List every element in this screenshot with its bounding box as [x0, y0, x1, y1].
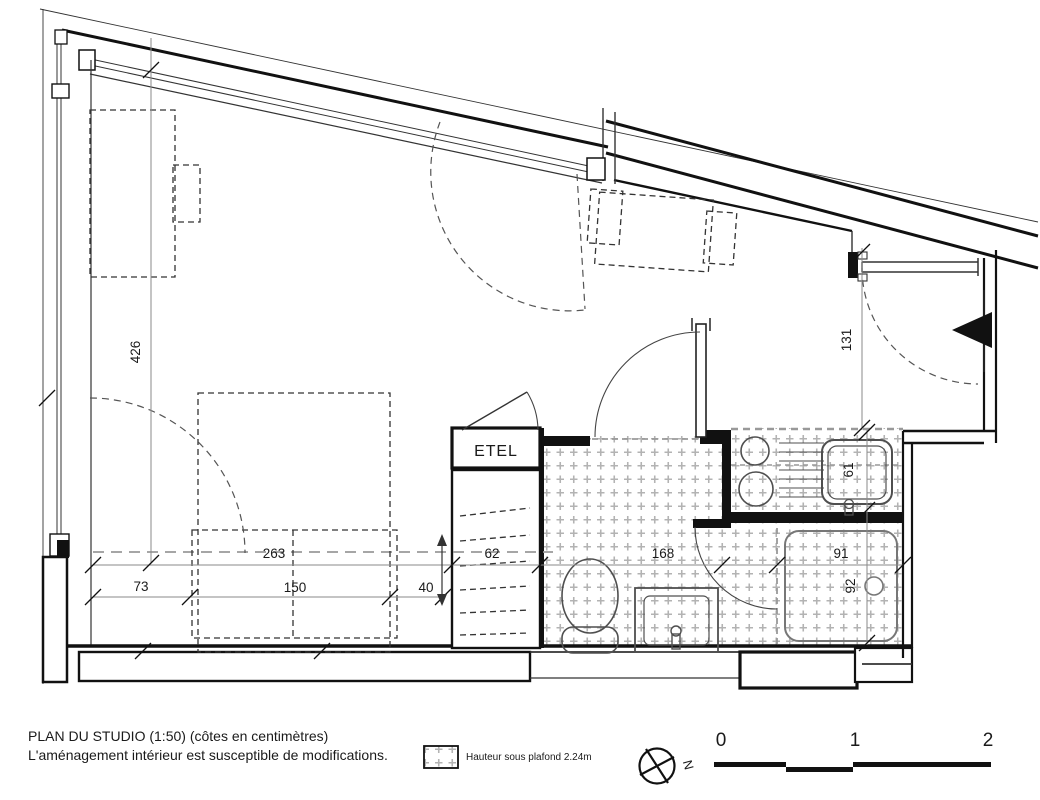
- dim-entry-depth: 131: [839, 329, 854, 352]
- north-compass-icon: N: [640, 749, 697, 784]
- top-window: [79, 50, 605, 183]
- dim-bed-zone: 263: [263, 546, 286, 561]
- dim-bathroom: 168: [652, 546, 675, 561]
- window-jamb: [79, 50, 95, 70]
- left-solid-wall: [43, 557, 67, 682]
- dim-room-height: 426: [128, 341, 143, 364]
- legend-ceiling-label: Hauteur sous plafond 2.24m: [466, 752, 592, 763]
- bathroom-door: [595, 318, 710, 437]
- closet-label: ETEL: [474, 443, 518, 460]
- scale-1: 1: [850, 730, 861, 751]
- dim-bed-width: 150: [284, 580, 307, 595]
- desk-center: [595, 192, 714, 272]
- scale-0: 0: [716, 730, 727, 751]
- floor-plan-page: ETEL: [0, 0, 1040, 800]
- dim-closet: 62: [484, 546, 499, 561]
- entrance-arrow-icon: [952, 312, 992, 348]
- chair: [173, 165, 200, 222]
- door-leaf: [696, 324, 706, 437]
- legend: Hauteur sous plafond 2.24m: [424, 746, 592, 768]
- closet-door-leaf: [462, 392, 527, 430]
- entrance-door: [858, 252, 978, 384]
- left-window-swing: [90, 398, 245, 553]
- north-label: N: [680, 758, 697, 771]
- entrance-door-swing: [862, 268, 978, 384]
- dim-bed-right: 40: [418, 580, 433, 595]
- bottom-wall: [67, 646, 912, 688]
- plan-subtitle: L'aménagement intérieur est susceptible …: [28, 747, 388, 763]
- window-jamb: [587, 158, 605, 180]
- dim-bed-left: 73: [133, 579, 148, 594]
- left-window: [43, 30, 91, 682]
- closet-door-swing: [527, 392, 538, 430]
- bathroom-door-swing: [595, 332, 700, 437]
- french-window-swing: [431, 122, 585, 311]
- chair: [587, 189, 623, 245]
- scale-2: 2: [983, 730, 994, 751]
- legend-hatch-swatch: [424, 746, 458, 768]
- chair: [703, 211, 737, 265]
- floor-plan-drawing: ETEL: [0, 0, 1040, 800]
- dim-shower-width: 91: [833, 546, 848, 561]
- dim-sink-depth: 61: [841, 462, 856, 477]
- bed: [198, 393, 390, 652]
- plan-title: PLAN DU STUDIO (1:50) (côtes en centimèt…: [28, 728, 328, 744]
- etel-closet: ETEL: [452, 392, 540, 468]
- clearance-arrow: [437, 534, 447, 606]
- desk-left: [90, 110, 175, 277]
- shower-drain-icon: [865, 577, 883, 595]
- french-window-leaf: [577, 174, 585, 309]
- dim-shower-depth: 92: [843, 578, 858, 593]
- entrance-marker: [952, 290, 992, 372]
- title-block: PLAN DU STUDIO (1:50) (côtes en centimèt…: [28, 728, 388, 763]
- scale-bar: 0 1 2: [714, 730, 993, 772]
